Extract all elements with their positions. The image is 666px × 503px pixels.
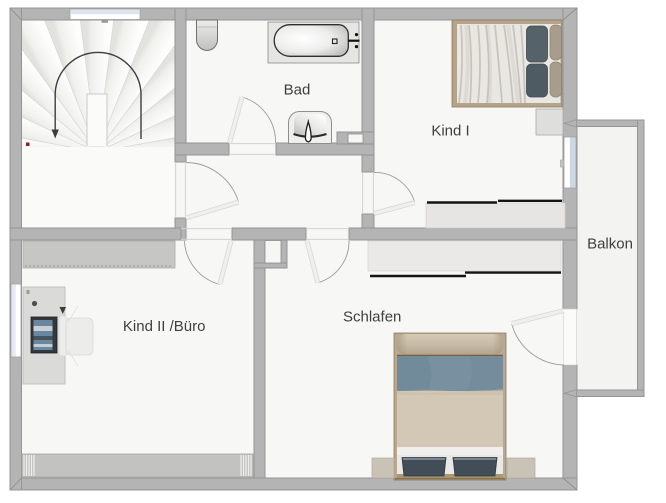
svg-text:Kind I: Kind I (431, 123, 469, 140)
svg-text:Kind II /Büro: Kind II /Büro (123, 318, 206, 335)
svg-text:Bad: Bad (284, 81, 311, 98)
svg-text:Schlafen: Schlafen (343, 309, 401, 326)
svg-text:Balkon: Balkon (587, 236, 633, 253)
